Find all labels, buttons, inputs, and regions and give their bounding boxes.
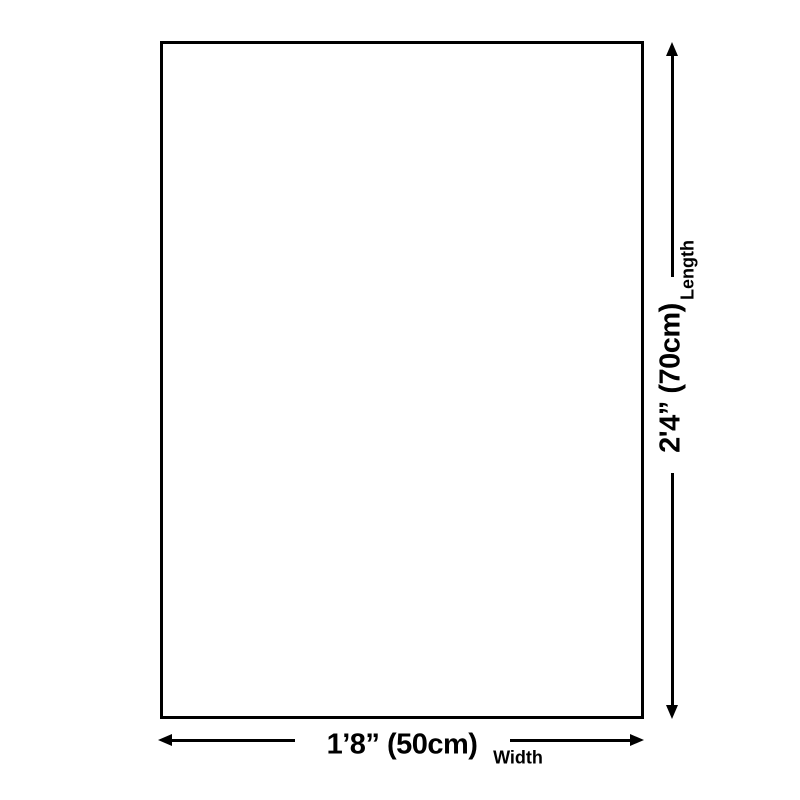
length-value: 2'4” (70cm) <box>655 303 688 453</box>
arrow-right-icon <box>630 734 644 746</box>
width-dimension-line-right <box>510 739 631 742</box>
length-dimension-line-bottom <box>671 473 674 706</box>
product-outline <box>160 41 644 719</box>
length-dimension-line-top <box>671 54 674 277</box>
width-dimension-line-left <box>170 739 295 742</box>
width-label: Width <box>493 748 543 769</box>
arrow-down-icon <box>666 705 678 719</box>
length-label: Length <box>678 240 699 300</box>
dimension-diagram: Length 2'4” (70cm) 1’8” (50cm) Width <box>0 0 800 800</box>
width-value: 1’8” (50cm) <box>327 729 478 762</box>
